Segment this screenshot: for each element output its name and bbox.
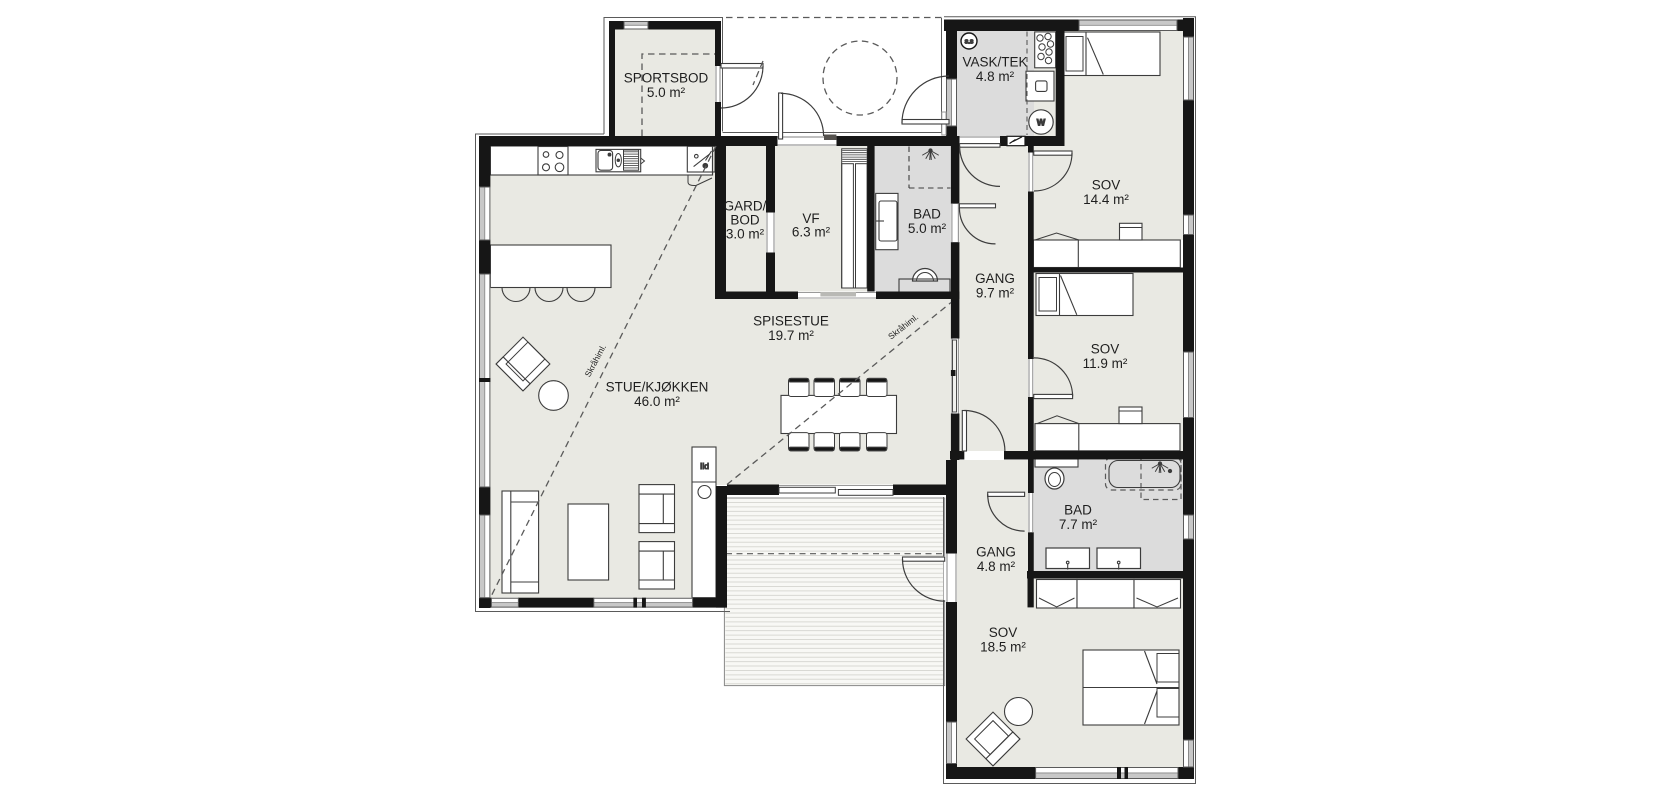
svg-text:14.4 m²: 14.4 m² [1083, 192, 1129, 207]
svg-text:SOV: SOV [989, 625, 1018, 640]
svg-text:Ild: Ild [700, 461, 709, 471]
svg-text:18.5 m²: 18.5 m² [980, 640, 1026, 655]
svg-text:W: W [1037, 118, 1046, 128]
svg-text:4.8 m²: 4.8 m² [976, 69, 1015, 84]
svg-text:SOV: SOV [1091, 342, 1120, 357]
svg-text:GANG: GANG [976, 545, 1016, 560]
svg-text:BOD: BOD [730, 213, 760, 228]
svg-text:SPORTSBOD: SPORTSBOD [624, 71, 709, 86]
svg-text:6.3 m²: 6.3 m² [792, 225, 831, 240]
svg-text:5.0 m²: 5.0 m² [908, 221, 947, 236]
svg-text:46.0 m²: 46.0 m² [634, 394, 680, 409]
svg-text:11.9 m²: 11.9 m² [1083, 356, 1128, 371]
svg-text:9.7 m²: 9.7 m² [976, 286, 1015, 301]
svg-text:GARD/: GARD/ [724, 199, 767, 214]
svg-text:5.0 m²: 5.0 m² [647, 85, 686, 100]
svg-text:7.7 m²: 7.7 m² [1059, 517, 1098, 532]
svg-text:SPISESTUE: SPISESTUE [753, 314, 829, 329]
svg-text:BAD: BAD [1064, 503, 1092, 518]
svg-text:VASK/TEK: VASK/TEK [962, 55, 1027, 70]
svg-text:STUE/KJØKKEN: STUE/KJØKKEN [606, 380, 709, 395]
svg-text:19.7 m²: 19.7 m² [768, 328, 814, 343]
svg-text:GANG: GANG [975, 271, 1015, 286]
svg-text:4.8 m²: 4.8 m² [977, 559, 1016, 574]
svg-text:SOV: SOV [1092, 178, 1121, 193]
svg-text:BAD: BAD [913, 207, 941, 222]
svg-text:3.0 m²: 3.0 m² [726, 227, 765, 242]
svg-text:S.S: S.S [965, 40, 974, 46]
